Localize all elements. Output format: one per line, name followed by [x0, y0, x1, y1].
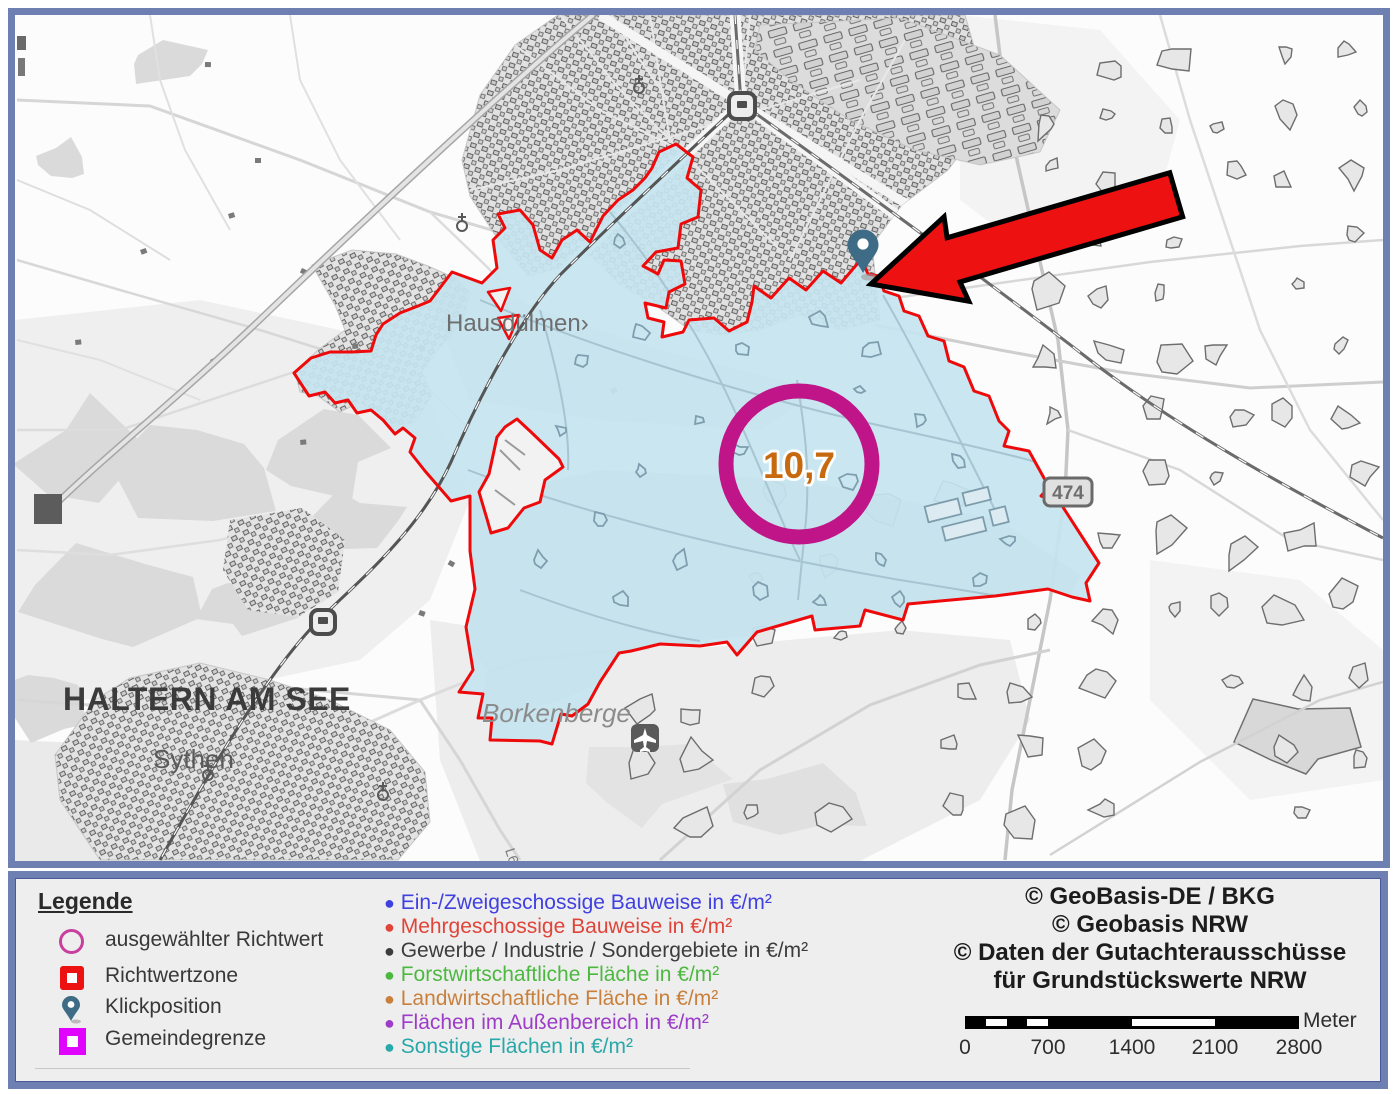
svg-text:HALTERN AM SEE: HALTERN AM SEE	[63, 681, 351, 717]
svg-text:474: 474	[1052, 483, 1084, 504]
svg-text:Borkenberge: Borkenberge	[482, 698, 631, 728]
svg-text:10,7: 10,7	[763, 445, 835, 486]
svg-text:Sythen: Sythen	[153, 744, 234, 774]
svg-text:Hausdülmen›: Hausdülmen›	[446, 310, 589, 337]
